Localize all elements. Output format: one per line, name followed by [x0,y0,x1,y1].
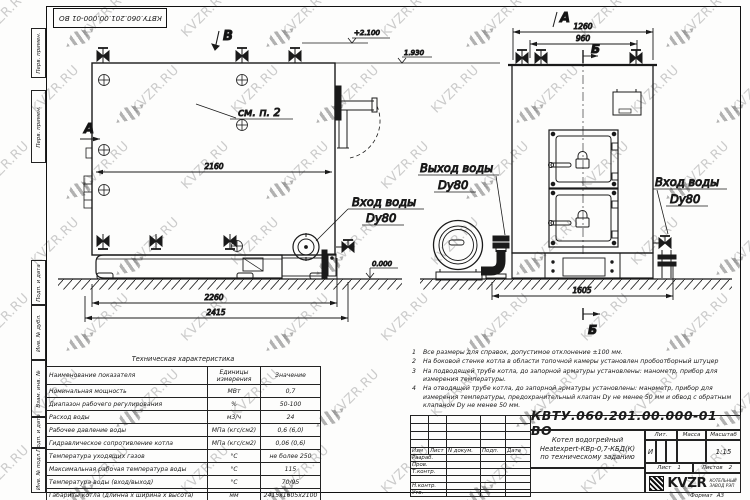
door-hinge [612,231,618,238]
spec-units: °С [208,476,261,489]
leader-line [196,104,236,118]
title-block: Изм Лист N докум. Подп. Дата Разраб. Про… [410,415,741,493]
spec-table-block: Техническая характеристика Наименование … [46,355,320,500]
sheets-value: 2 [729,465,733,471]
front-dimensions [492,28,673,300]
lock-icon [576,211,589,228]
mass-header: Масса [677,430,706,440]
note-number: 2 [412,358,423,366]
side-valve-icon [336,240,354,252]
sheet-value: 1 [677,465,681,471]
row-prov: Пров. [411,462,447,469]
title-line3: по техническому заданию [540,453,635,462]
front-view: 1260 960 1605 А Б Б [418,11,732,337]
inlet-dy-side: Dy80 [366,211,396,225]
format-label: ФорматА3 [690,493,724,499]
mass-cell [677,440,706,463]
row-razrab: Разраб. [411,455,447,462]
section-label-b-right: Б [591,42,600,56]
sheets-label: Листов [702,465,723,471]
kvzr-logo-icon [649,476,664,491]
spec-name: Расход воды [47,411,208,424]
spec-value: 115 [261,463,321,476]
lit-cell-3 [666,440,677,463]
kvzr-logo-text: KVZR [667,475,706,491]
notes-list: 1Все размеры для справок, допустимое отк… [412,349,742,412]
view-label-a: А [559,11,570,26]
spec-value: не более 250 [261,450,321,463]
wall-lug [86,148,92,158]
row-utv: Утв. [411,489,447,496]
scale-label: Масштаб [710,432,737,438]
drain-valve-icon [97,234,109,249]
valve-icon [630,50,642,65]
door-hinge [612,201,618,208]
spec-row: Диапазон рабочего регулирования%50-100 [47,398,321,411]
blower-fan [434,221,483,281]
spec-value: 0,06 (0,6) [261,437,321,450]
sheet-cell: Лист 1 [645,463,693,473]
lit-header: Лит. [645,430,677,440]
door-hinge [612,173,618,180]
spec-name: Максимальная рабочая температура воды [47,463,208,476]
format-word: Формат [690,493,713,499]
signatures-header-row: Изм Лист N докум. Подп. Дата [411,448,531,455]
spec-name: Диапазон рабочего регулирования [47,398,208,411]
title-line1: Котел водогрейный [552,436,623,445]
mass-label: Масса [683,432,701,438]
inlet-label-side: Вход воды [352,195,416,209]
boiler-body-side [92,63,335,255]
spec-units: МВт [208,385,261,398]
spec-units: мм [208,489,261,500]
drawing-title: Котел водогрейный Heatexpert-КВр-0,7-КБД… [530,430,645,468]
valve-icon [535,50,547,65]
note-number: 3 [412,368,423,385]
leader-line [496,176,505,235]
spec-name: Температура воды (вход/выход) [47,476,208,489]
door-hinge [612,143,618,150]
sheet-label: Лист [657,465,671,471]
view-a-tick [553,12,557,27]
title-line2: Heatexpert-КВр-0,7-КБД(К) [540,445,635,454]
dim-2415: 2415 [206,308,225,317]
col-podp: Подп. [481,448,506,455]
spec-name: Гидравлическое сопротивление котла [47,437,208,450]
format-value: А3 [717,493,724,499]
spec-value: 50-100 [261,398,321,411]
scale-value: 1:15 [716,448,732,456]
spec-value: 24 [261,411,321,424]
spec-value: 0,6 (6,0) [261,424,321,437]
row-nkontr: Н.контр. [411,482,447,489]
outlet-pipe [481,236,509,278]
note-text: На боковой стенке котла в области топочн… [423,358,718,366]
lit-label: Лит. [655,432,668,438]
valve-icon [97,48,109,63]
ground-hatch [420,280,732,290]
dim-2160: 2160 [204,162,223,171]
drain-valve-icon [224,234,236,249]
company-logo-cell: KVZR КОТЕЛЬНЫЙ ЗАВОД РЭП [645,473,741,493]
leader-line [657,190,668,234]
spec-row: Максимальная рабочая температура воды°С1… [47,463,321,476]
drain-valve-icon [150,234,162,249]
col-list: Лист [429,448,447,455]
wall-bracket [84,176,92,208]
valve-icon [289,48,301,63]
spec-row: Расход водым3/ч24 [47,411,321,424]
see-note-label: см. п. 2 [238,106,281,119]
scale-cell: 1:15 [706,440,741,463]
inlet-flange [293,233,319,261]
spec-value: 2415х1605х2100 [261,489,321,500]
datum-target-icon [99,185,110,196]
drawing-sheet: KVZR.RUKVZR.RUKVZR.RUKVZR.RUKVZR.RUKVZR.… [0,0,750,500]
spec-name: Рабочее давление воды [47,424,208,437]
valve-icon [516,50,528,65]
note-item: 1Все размеры для справок, допустимое отк… [412,349,742,357]
spec-row: Рабочее давление водыМПа (кгс/см2)0,6 (6… [47,424,321,437]
note-text: Все размеры для справок, допустимое откл… [423,349,623,357]
leader-line [316,209,348,241]
dim-2260: 2260 [204,293,223,302]
lock-icon [576,152,589,169]
doc-number: КВТУ.060.201.00.000-01 ВО [530,415,741,430]
section-label-b-top: В [223,29,233,44]
spec-row: Номинальная мощностьМВт0,7 [47,385,321,398]
swing-arc [350,106,380,158]
spec-row: Гидравлическое сопротивление котлаМПа (к… [47,437,321,450]
control-panel [613,89,641,115]
spec-table-title: Техническая характеристика [46,355,320,366]
spec-units: МПа (кгс/см2) [208,437,261,450]
datum-target-icon [99,75,110,86]
spec-header-name: Наименование показателя [47,367,208,385]
datum-target-icon [237,120,248,131]
lit-cell-2 [656,440,666,463]
col-izm: Изм [411,448,429,455]
elev-0000: 0.000 [372,260,393,268]
ground-hatch [58,280,402,290]
spec-name: Температура уходящих газов [47,450,208,463]
kvzr-logo-caption: КОТЕЛЬНЫЙ ЗАВОД РЭП [709,478,736,489]
spec-units: °С [208,463,261,476]
elev-1930: 1.930 [404,49,425,57]
logo-caption-line2: ЗАВОД РЭП [709,483,736,488]
col-data: Дата [506,448,531,455]
spec-units: м3/ч [208,411,261,424]
sheets-cell: Листов 2 [693,463,741,473]
lit-value: И [648,448,653,456]
elev-2100: +2.100 [354,29,380,37]
note-number: 4 [412,385,423,410]
title-block-signatures: Изм Лист N докум. Подп. Дата Разраб. Про… [410,415,531,497]
scale-header: Масштаб [706,430,741,440]
inlet-label-front: Вход воды [655,175,719,189]
spec-name: Номинальная мощность [47,385,208,398]
section-b-arrow [212,44,219,50]
note-item: 3На подводящей трубе котла, до запорной … [412,368,742,385]
datum-target-icon [99,145,110,156]
section-label-b-bottom: Б [588,323,597,337]
spec-row: Температура уходящих газов°Сне более 250 [47,450,321,463]
inlet-dy-front: Dy80 [670,192,700,206]
col-ndokum: N докум. [447,448,481,455]
spec-units: % [208,398,261,411]
spec-header-units: Единицы измерения [208,367,261,385]
spec-value: 70/95 [261,476,321,489]
spec-header-row: Наименование показателя Единицы измерени… [47,367,321,385]
section-label-a-left: А [83,122,94,137]
dim-1260: 1260 [573,22,592,31]
note-number: 1 [412,349,423,357]
note-item: 2На боковой стенке котла в области топоч… [412,358,742,366]
spec-row: Температура воды (вход/выход)°С70/95 [47,476,321,489]
note-text: На подводящей трубе котла, до запорной а… [423,368,742,385]
spec-units: °С [208,450,261,463]
spec-table: Наименование показателя Единицы измерени… [46,366,321,500]
dim-960: 960 [576,34,591,43]
spec-units: МПа (кгс/см2) [208,424,261,437]
spec-value: 0,7 [261,385,321,398]
spec-name: Габариты котла (длинна х ширина х высота… [47,489,208,500]
side-view: 2160 2260 2415 +2.100 1.930 0.000 см. п.… [58,29,500,322]
outlet-label: Выход воды [420,161,493,175]
valve-icon [236,48,248,63]
outlet-dy: Dy80 [438,178,468,192]
spec-header-value: Значение [261,367,321,385]
spec-row: Габариты котла (длинна х ширина х высота… [47,489,321,500]
empty-cell [530,468,645,493]
lit-cell-1: И [645,440,656,463]
datum-target-icon [237,75,248,86]
elevation-marks [302,38,500,278]
front-base [512,253,653,278]
chimney-stub [336,86,380,158]
row-tkontr: Т.контр. [411,469,447,476]
